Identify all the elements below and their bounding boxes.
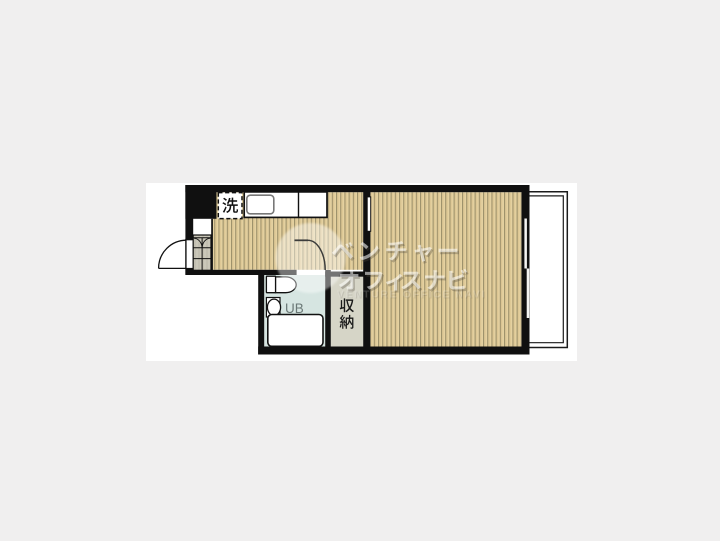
svg-text:VENTURE OFFICE NAVI: VENTURE OFFICE NAVI bbox=[337, 290, 486, 301]
svg-text:UB: UB bbox=[285, 301, 304, 316]
